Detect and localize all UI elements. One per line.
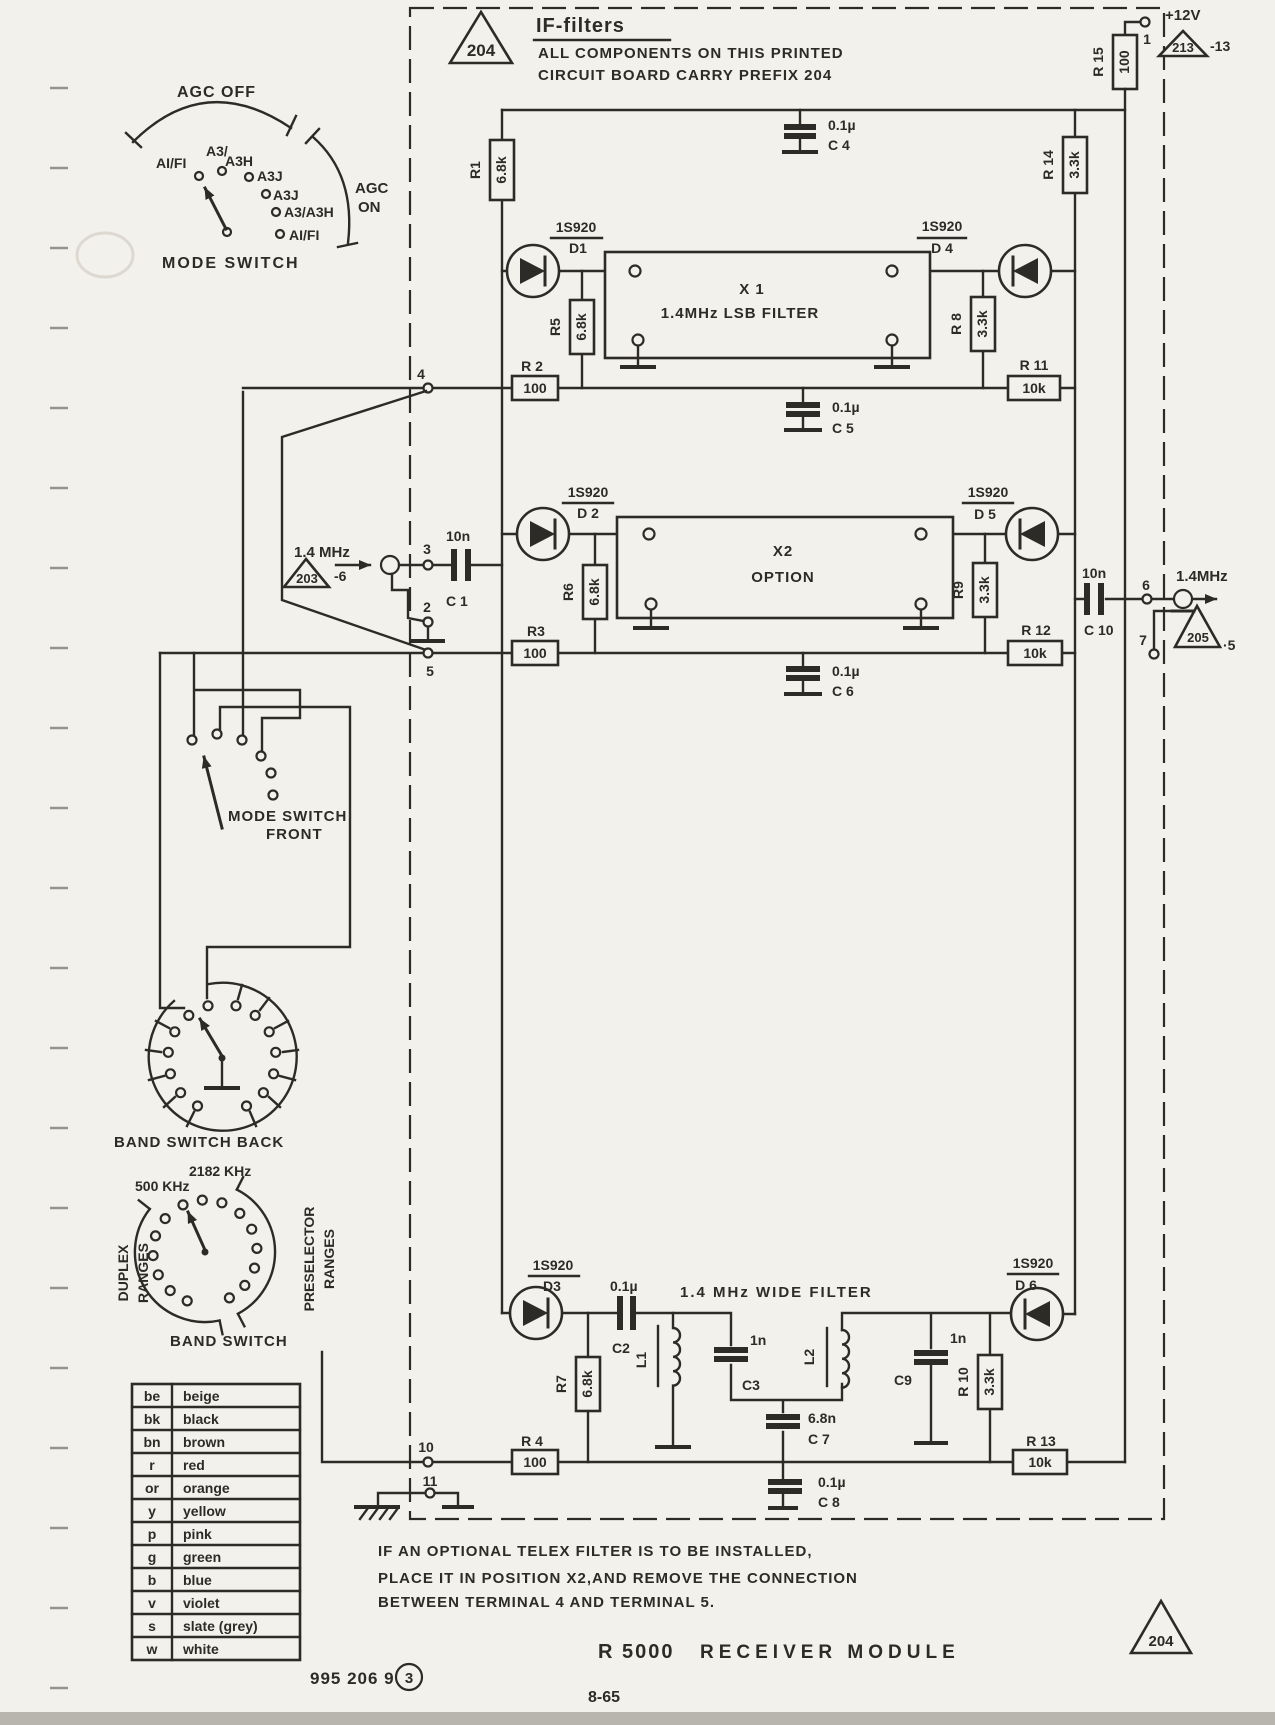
mode-pos-5: A3/A3H — [284, 204, 334, 220]
r14-ref: R 14 — [1040, 150, 1056, 180]
r11-value: 10k — [1022, 380, 1046, 396]
resistor-r7-group: R7 6.8k — [553, 1313, 600, 1462]
r10-value: 3.3k — [981, 1368, 997, 1395]
wide-filter-row: 1S920 D3 1.4 MHz WIDE FILTER R7 6.8k 0.1… — [502, 1255, 1075, 1462]
chassis-ground-icon — [356, 1507, 398, 1519]
binder-tick-marks — [50, 88, 68, 1688]
board-ref-number: 204 — [467, 41, 496, 60]
terminal-10 — [424, 1458, 433, 1467]
c9-value: 1n — [950, 1330, 966, 1346]
band-switch-back-wiper-arrow-icon — [200, 1019, 222, 1056]
r9-value: 3.3k — [976, 576, 992, 603]
diode-d3-icon — [510, 1287, 562, 1339]
color-abbr: be — [144, 1388, 161, 1404]
color-code-table: be beige bk black bn brown r red or oran… — [132, 1384, 300, 1660]
d4-ref: D 4 — [931, 240, 953, 256]
r13-ref: R 13 — [1026, 1433, 1056, 1449]
band-switch-back: BAND SWITCH BACK — [114, 653, 298, 1151]
r5-value: 6.8k — [573, 313, 589, 340]
c5-ref: C 5 — [832, 420, 854, 436]
capacitor-c7-group: 6.8n C 7 — [766, 1410, 836, 1447]
ref-205-pin: ·5 — [1223, 637, 1236, 653]
preselector-ranges-label-2: RANGES — [321, 1229, 337, 1289]
agc-on-label-1: AGC — [355, 180, 389, 197]
mode-pos-2b: A3H — [225, 153, 253, 169]
mode-pos-3: A3J — [257, 168, 283, 184]
r7-ref: R7 — [553, 1375, 569, 1393]
board-ref-bottom: 204 — [1148, 1633, 1174, 1650]
band-switch-back-label: BAND SWITCH BACK — [114, 1134, 284, 1151]
revision: 3 — [405, 1670, 413, 1687]
c9-ref: C9 — [894, 1372, 912, 1388]
d3-ref: D3 — [543, 1278, 561, 1294]
r15-value: 100 — [1116, 50, 1132, 74]
capacitor-c2-group: 0.1µ C2 — [610, 1278, 638, 1356]
terminal-6 — [1143, 595, 1152, 604]
terminal-11 — [426, 1489, 435, 1498]
r15-ref: R 15 — [1090, 47, 1106, 77]
c3-ref: C3 — [742, 1377, 760, 1393]
r14-value: 3.3k — [1066, 151, 1082, 178]
c8-ref: C 8 — [818, 1494, 840, 1510]
option-filter-row: 1S920 D 2 X2 OPTION 1S920 D 5 R6 6.8k R9… — [502, 484, 1075, 653]
terminal-6-label: 6 — [1142, 577, 1150, 593]
l2-ref: L2 — [801, 1349, 817, 1366]
c6-value: 0.1µ — [832, 663, 860, 679]
line-terminal10: 10 R 4 100 R 13 10k 0.1µ C 8 11 — [322, 1352, 1125, 1519]
agc-off-label: AGC OFF — [177, 84, 256, 101]
supply-label: +12V — [1165, 7, 1200, 24]
resistor-r9-group: R9 3.3k — [950, 534, 997, 653]
filter-x2-box — [617, 517, 953, 618]
terminal-11-label: 11 — [423, 1473, 438, 1489]
supply-entry: +12V 1 213 -13 R 15 100 — [1090, 7, 1230, 89]
c2-ref: C2 — [612, 1340, 630, 1356]
resistor-r10-group: R 10 3.3k — [955, 1355, 1002, 1409]
ref-205: 205 — [1187, 630, 1209, 645]
c2-value: 0.1µ — [610, 1278, 638, 1294]
mode-pos-1: AI/FI — [156, 155, 186, 171]
agc-on-label-2: ON — [358, 199, 381, 216]
page-title: IF-filters — [536, 15, 625, 37]
color-abbr: bn — [143, 1434, 160, 1450]
c1-ref: C 1 — [446, 593, 468, 609]
diode-d5-icon — [1006, 508, 1058, 560]
mode-switch-front-wiper-arrow-icon — [204, 757, 222, 828]
c4-ref: C 4 — [828, 137, 850, 153]
output-freq-label: 1.4MHz — [1176, 568, 1228, 585]
inductor-l1-icon: L1 — [633, 1313, 689, 1447]
input-connector-icon — [381, 556, 399, 574]
color-name: yellow — [183, 1503, 226, 1519]
r5-ref: R5 — [547, 318, 563, 336]
jumper-4-to-5 — [282, 391, 426, 650]
d1-ref: D1 — [569, 240, 587, 256]
diode-d4-icon — [999, 245, 1051, 297]
terminal-1-label: 1 — [1143, 31, 1151, 47]
model-name: R 5000 — [598, 1641, 675, 1663]
mode-switch-front-label-2: FRONT — [266, 826, 323, 843]
band-switch-wiper-arrow-icon — [188, 1212, 205, 1250]
r8-ref: R 8 — [948, 313, 964, 335]
ref-213: 213 — [1172, 40, 1194, 55]
lsb-filter-row: 1S920 D1 X 1 1.4MHz LSB FILTER 1S920 D 4… — [502, 218, 1075, 388]
terminal-3-label: 3 — [423, 541, 431, 557]
color-name: red — [183, 1457, 205, 1473]
footer: 995 206 9 3 R 5000 RECEIVER MODULE 8-65 … — [310, 1601, 1191, 1706]
color-abbr: b — [148, 1572, 157, 1588]
color-abbr: r — [149, 1457, 155, 1473]
mode-pos-4: A3J — [273, 187, 299, 203]
r7-value: 6.8k — [579, 1370, 595, 1397]
x1-desc: 1.4MHz LSB FILTER — [661, 305, 819, 322]
mode-switch-dial: AGC OFF AGC ON AI/FI A3/ A3H A3J A3J A3/… — [126, 84, 389, 272]
terminal-10-label: 10 — [418, 1439, 434, 1455]
capacitor-c1-group: 10n C 1 — [433, 528, 502, 609]
resistor-r6-group: R6 6.8k — [560, 534, 607, 653]
r2-ref: R 2 — [521, 358, 543, 374]
terminal-1 — [1141, 18, 1150, 27]
resistor-r5-group: R5 6.8k — [547, 271, 594, 388]
color-name: pink — [183, 1526, 212, 1542]
band-switch-pos-2182: 2182 KHz — [189, 1163, 251, 1179]
r9-ref: R9 — [950, 581, 966, 599]
ref-213-pin: -13 — [1210, 38, 1230, 54]
preselector-ranges-label-1: PRESELECTOR — [301, 1207, 317, 1312]
r3-ref: R3 — [527, 623, 545, 639]
x2-name: X2 — [773, 543, 793, 560]
terminal-4-label: 4 — [417, 366, 425, 382]
color-name: orange — [183, 1480, 230, 1496]
wide-filter-label: 1.4 MHz WIDE FILTER — [680, 1284, 873, 1301]
color-name: brown — [183, 1434, 225, 1450]
terminal-7-label: 7 — [1139, 632, 1147, 648]
doc-number: 995 206 9 — [310, 1669, 395, 1688]
c10-value: 10n — [1082, 565, 1106, 581]
color-name: green — [183, 1549, 221, 1565]
terminal-2-label: 2 — [423, 599, 431, 615]
r8-value: 3.3k — [974, 310, 990, 337]
color-abbr: bk — [144, 1411, 161, 1427]
resistor-r14-group: R 14 3.3k — [1040, 137, 1087, 193]
resistor-r1-group: R1 6.8k — [467, 140, 514, 200]
terminal-5-label: 5 — [426, 663, 434, 679]
ref-203-pin: -6 — [334, 568, 347, 584]
c4-value: 0.1µ — [828, 117, 856, 133]
output-connector-icon — [1174, 590, 1192, 608]
mode-switch-front-label-1: MODE SWITCH — [228, 808, 347, 825]
band-switch-label: BAND SWITCH — [170, 1333, 288, 1350]
schematic-page: 204 IF-filters ALL COMPONENTS ON THIS PR… — [0, 0, 1275, 1725]
terminal-3 — [424, 561, 433, 570]
d5-part: 1S920 — [968, 484, 1009, 500]
r12-value: 10k — [1023, 645, 1047, 661]
c5-value: 0.1µ — [832, 399, 860, 415]
duplex-ranges-label-2: RANGES — [135, 1243, 151, 1303]
r13-value: 10k — [1028, 1454, 1052, 1470]
note-line-2: PLACE IT IN POSITION X2,AND REMOVE THE C… — [378, 1570, 858, 1587]
signal-output: 10n C 10 6 1.4MHz 205 ·5 7 — [1075, 565, 1236, 659]
diode-d1-icon — [507, 245, 559, 297]
ref-203: 203 — [296, 571, 318, 586]
d6-ref: D 6 — [1015, 1277, 1037, 1293]
r12-ref: R 12 — [1021, 622, 1051, 638]
note-line-3: BETWEEN TERMINAL 4 AND TERMINAL 5. — [378, 1594, 715, 1611]
c7-value: 6.8n — [808, 1410, 836, 1426]
c7-ref: C 7 — [808, 1431, 830, 1447]
page-number: 8-65 — [588, 1689, 620, 1706]
color-name: white — [182, 1641, 219, 1657]
title-note-2: CIRCUIT BOARD CARRY PREFIX 204 — [538, 67, 832, 84]
inductor-l2-icon: L2 — [801, 1328, 849, 1388]
l1-ref: L1 — [633, 1352, 649, 1369]
band-switch-pos-500: 500 KHz — [135, 1178, 189, 1194]
r1-ref: R1 — [467, 161, 483, 179]
color-abbr: v — [148, 1595, 156, 1611]
r1-value: 6.8k — [493, 156, 509, 183]
band-switch: 2182 KHz 500 KHz DUPLEX RANGES PRESELECT… — [115, 1163, 337, 1350]
r6-ref: R6 — [560, 583, 576, 601]
mode-switch-label: MODE SWITCH — [162, 255, 300, 272]
r10-ref: R 10 — [955, 1367, 971, 1397]
mode-switch-wiper-arrow-icon — [205, 188, 226, 229]
d5-ref: D 5 — [974, 506, 996, 522]
r2-value: 100 — [523, 380, 547, 396]
line-terminal5: 5 R3 100 0.1µ C 6 R 12 10k — [160, 622, 1075, 699]
capacitor-c5-group: 0.1µ C 5 — [786, 388, 860, 436]
diode-d6-icon — [1011, 1288, 1063, 1340]
r11-ref: R 11 — [1020, 357, 1049, 373]
color-name: black — [183, 1411, 219, 1427]
d2-ref: D 2 — [577, 505, 599, 521]
terminal-5 — [424, 649, 433, 658]
d3-part: 1S920 — [533, 1257, 574, 1273]
resistor-r8-group: R 8 3.3k — [948, 271, 995, 388]
x1-name: X 1 — [739, 281, 765, 298]
c8-value: 0.1µ — [818, 1474, 846, 1490]
note-line-1: IF AN OPTIONAL TELEX FILTER IS TO BE INS… — [378, 1543, 813, 1560]
c10-ref: C 10 — [1084, 622, 1114, 638]
color-name: violet — [183, 1595, 220, 1611]
duplex-ranges-label-1: DUPLEX — [115, 1244, 131, 1301]
input-freq-label: 1.4 MHz — [294, 544, 350, 561]
d6-part: 1S920 — [1013, 1255, 1054, 1271]
c6-ref: C 6 — [832, 683, 854, 699]
color-abbr: s — [148, 1618, 156, 1634]
d2-part: 1S920 — [568, 484, 609, 500]
color-abbr: w — [146, 1641, 158, 1657]
terminal-7 — [1150, 650, 1159, 659]
color-abbr: y — [148, 1503, 156, 1519]
capacitor-c8-group: 0.1µ C 8 — [768, 1462, 846, 1510]
d4-part: 1S920 — [922, 218, 963, 234]
r4-value: 100 — [523, 1454, 547, 1470]
signal-input: 1.4 MHz 203 -6 3 2 10n C 1 — [284, 528, 502, 641]
x2-desc: OPTION — [751, 569, 815, 586]
mode-switch-front: MODE SWITCH FRONT — [188, 392, 351, 998]
color-abbr: p — [148, 1526, 157, 1542]
capacitor-c10-group: 10n C 10 — [1082, 565, 1114, 638]
r4-ref: R 4 — [521, 1433, 543, 1449]
capacitor-c6-group: 0.1µ C 6 — [786, 653, 860, 699]
color-name: slate (grey) — [183, 1618, 258, 1634]
color-name: beige — [183, 1388, 220, 1404]
title-note-1: ALL COMPONENTS ON THIS PRINTED — [538, 45, 844, 62]
d1-part: 1S920 — [556, 219, 597, 235]
color-name: blue — [183, 1572, 212, 1588]
telex-note: IF AN OPTIONAL TELEX FILTER IS TO BE INS… — [378, 1543, 858, 1611]
r3-value: 100 — [523, 645, 547, 661]
mode-pos-6: AI/FI — [289, 227, 319, 243]
c3-value: 1n — [750, 1332, 766, 1348]
diode-d2-icon — [517, 508, 569, 560]
r6-value: 6.8k — [586, 578, 602, 605]
module-name: RECEIVER MODULE — [700, 1642, 960, 1663]
color-abbr: g — [148, 1549, 157, 1565]
title-block: 204 IF-filters ALL COMPONENTS ON THIS PR… — [450, 12, 844, 84]
terminal-2 — [424, 618, 433, 627]
capacitor-c3-group: 1n C3 — [714, 1332, 766, 1393]
c1-value: 10n — [446, 528, 470, 544]
capacitor-c4-group: 0.1µ C 4 — [784, 110, 856, 153]
color-abbr: or — [145, 1480, 160, 1496]
